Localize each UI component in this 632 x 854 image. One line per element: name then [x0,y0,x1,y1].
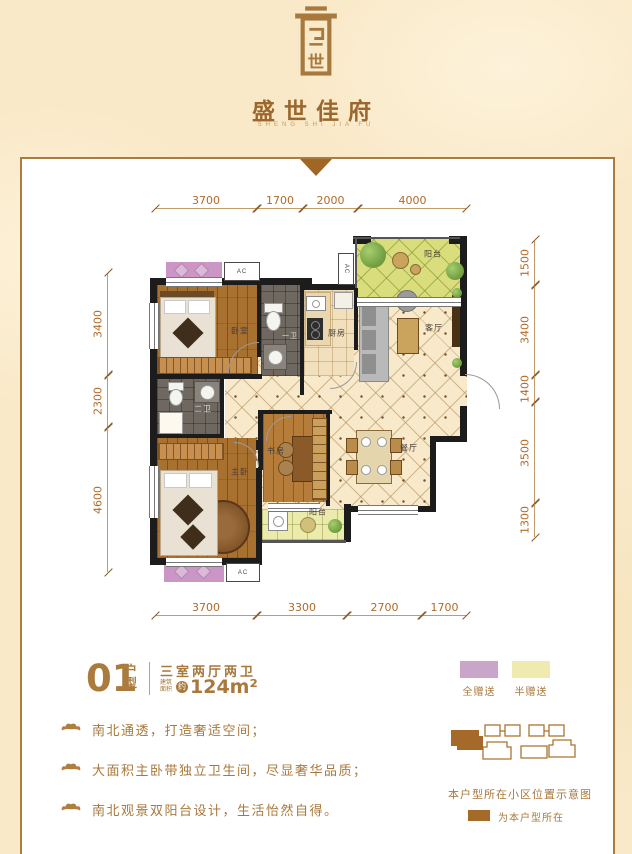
feature-item: 南北观景双阳台设计，生活怡然自得。 [60,800,339,819]
flourish-icon [60,760,82,773]
dim-bottom-2: 3300 [257,615,347,616]
dim-value: 3500 [519,439,532,467]
dining-table [356,430,392,484]
room-label-bedroom: 卧室 [231,326,249,337]
room-label-living: 客厅 [425,323,443,334]
ac-platform-north: AC [224,262,260,281]
dim-left-2: 2300 [107,375,108,427]
down-triangle-marker [300,159,332,176]
feature-text: 南北观景双阳台设计，生活怡然自得。 [92,800,339,819]
flourish-icon [60,800,82,813]
patio-stool [410,264,421,275]
room-label-bath2: 二卫 [194,404,212,415]
wall-segment [220,378,224,438]
site-location-diagram [447,722,589,776]
dim-value: 3700 [155,601,257,614]
divider [149,662,150,695]
patio-table [392,252,409,269]
legend-label-half-gift: 半赠送 [511,683,551,698]
wardrobe [158,443,224,460]
room-label-kitchen: 厨房 [328,328,346,339]
feature-text: 南北通透，打造奢适空间； [92,720,266,739]
room-label-bath1: 一卫 [282,331,298,341]
ac-label: AC [343,264,349,274]
window [149,303,159,349]
dim-top-2: 1700 [257,208,303,209]
shower [159,412,183,434]
bed-mattress [160,297,216,361]
stove [307,318,323,340]
ac-platform-south: AC [226,563,260,582]
ac-platform-mid: AC [338,253,354,285]
wall-segment [256,468,262,562]
dim-value: 3400 [519,316,532,344]
room-label-master: 主卧 [231,467,249,478]
wall-segment [430,436,436,512]
dim-right-4: 3500 [534,402,535,503]
dim-top-4: 4000 [358,208,467,209]
dim-value: 1700 [257,194,303,207]
unit-type-label: 户型 [125,664,140,690]
legend-swatch-half-gift [512,661,550,678]
dim-value: 4000 [358,194,467,207]
wall-segment [150,374,262,379]
dim-value: 1300 [519,506,532,534]
dim-value: 1500 [519,249,532,277]
brand-seal-logo: 世 [291,4,341,88]
feature-item: 南北通透，打造奢适空间； [60,720,266,739]
brand-name: 盛世佳府 [0,92,632,126]
dim-value: 1700 [422,601,467,614]
sliding-door [357,297,461,307]
window [149,466,159,518]
washbasin [194,381,220,403]
dim-value: 2000 [303,194,358,207]
feature-text: 大面积主卧带独立卫生间，尽显奢华品质； [92,760,368,779]
washbasin [263,344,287,370]
toilet [169,389,183,406]
site-highlight-unit [451,730,483,750]
dim-value: 3400 [92,310,105,338]
chair [346,460,358,475]
sofa [359,302,389,382]
room-label-study: 书房 [267,446,285,457]
brand-pinyin: SHENG SHI JIA FU [0,122,632,128]
dim-value: 4600 [92,486,105,514]
window [358,505,418,515]
feature-item: 大面积主卧带独立卫生间，尽显奢华品质； [60,760,368,779]
legend-swatch-full-gift [460,661,498,678]
room-label-balcony-south: 阳台 [309,507,327,518]
balcony-rail [353,237,467,239]
wall-segment [150,434,224,438]
dim-value: 3300 [257,601,347,614]
wall-segment [344,504,351,542]
area-prefix: 建筑面积 [160,680,174,694]
area-approx-circle: 约 [176,681,188,693]
bookshelf [312,418,327,500]
wall-segment [300,285,304,395]
coffee-table [397,318,419,354]
dim-bottom-1: 3700 [155,615,257,616]
dim-right-3: 1400 [534,375,535,402]
plant [446,262,464,280]
plant [360,242,386,268]
plant [328,519,342,533]
balcony-rail [262,540,346,543]
toilet [266,311,281,331]
flyer-page: 世 盛世佳府 SHENG SHI JIA FU AC AC AC [0,0,632,854]
chair [278,460,294,476]
window [166,557,222,567]
room-label-balcony-north: 阳台 [424,249,442,260]
dim-value: 1400 [519,375,532,403]
dim-right-5: 1300 [534,503,535,537]
dim-value: 2700 [347,601,422,614]
dim-bottom-3: 2700 [347,615,422,616]
patio-chair [300,517,316,533]
washing-machine [268,511,288,531]
chair [390,460,402,475]
dim-top-3: 2000 [303,208,358,209]
plant [452,358,462,368]
area-row: 建筑面积约124m² [160,676,258,698]
dim-left-3: 4600 [107,427,108,572]
chair [346,438,358,453]
seal-character: 世 [308,53,325,72]
legend-label-full-gift: 全赠送 [459,683,499,698]
dim-left-1: 3400 [107,273,108,375]
dim-value: 2300 [92,387,105,415]
dim-top-1: 3700 [155,208,257,209]
flourish-icon [60,720,82,733]
dim-right-2: 3400 [534,285,535,375]
fridge [334,292,353,309]
site-legend-label: 为本户型所在 [498,809,564,824]
site-caption: 本户型所在小区位置示意图 [448,786,592,802]
area-value: 124m² [190,676,258,698]
kitchen-sink [306,296,326,311]
wall-segment [258,410,332,414]
wall-segment [258,410,263,470]
window [166,277,222,287]
room-label-dining: 餐厅 [400,443,418,454]
dim-bottom-4: 1700 [422,615,467,616]
dim-value: 3700 [155,194,257,207]
plan-step-patch [436,442,467,512]
dim-right-1: 1500 [534,240,535,285]
site-legend-swatch [468,810,490,821]
